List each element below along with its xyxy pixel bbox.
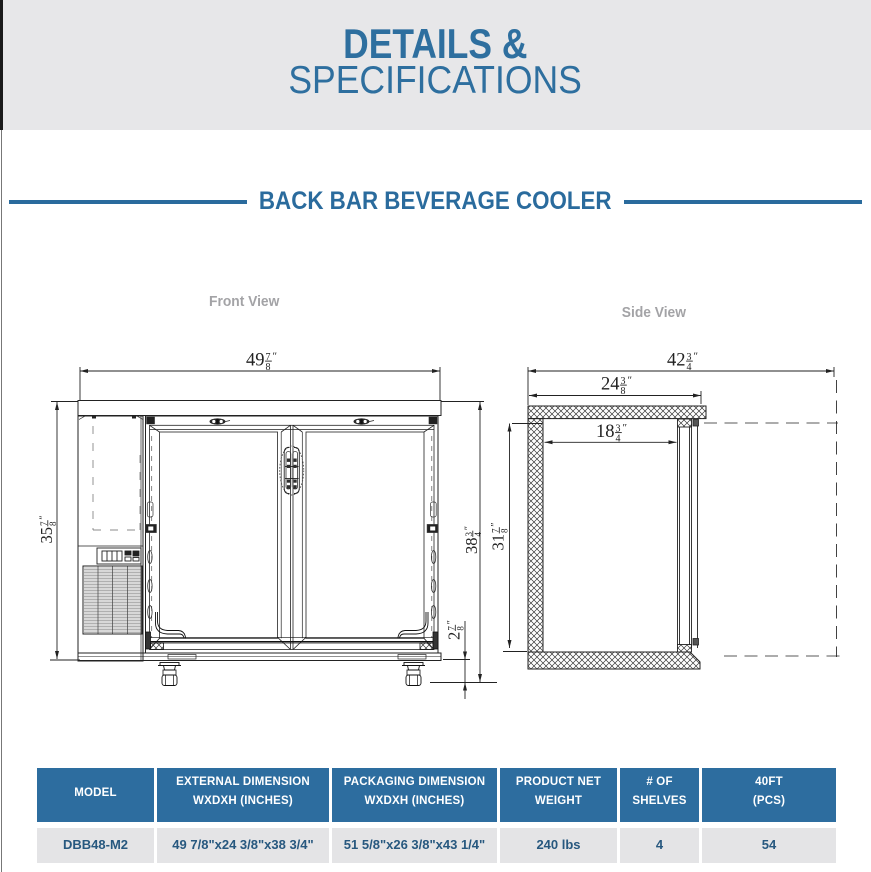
svg-text:18: 18 bbox=[596, 422, 615, 442]
svg-text:″: ″ bbox=[38, 515, 49, 519]
svg-text:8: 8 bbox=[621, 386, 626, 397]
svg-text:″: ″ bbox=[490, 522, 501, 526]
svg-text:″: ″ bbox=[273, 351, 278, 363]
svg-text:″: ″ bbox=[446, 620, 457, 624]
svg-text:8: 8 bbox=[266, 362, 271, 373]
svg-text:″: ″ bbox=[694, 351, 699, 363]
svg-text:4: 4 bbox=[473, 532, 483, 537]
svg-text:31: 31 bbox=[489, 534, 508, 551]
svg-text:24: 24 bbox=[601, 375, 620, 395]
svg-text:″: ″ bbox=[463, 526, 474, 530]
svg-text:2: 2 bbox=[445, 632, 464, 640]
svg-text:38: 38 bbox=[462, 538, 481, 555]
svg-text:″: ″ bbox=[623, 422, 628, 434]
svg-text:8: 8 bbox=[48, 521, 58, 526]
svg-text:42: 42 bbox=[667, 351, 686, 371]
svg-text:8: 8 bbox=[456, 626, 466, 631]
svg-text:4: 4 bbox=[687, 362, 692, 373]
svg-text:4: 4 bbox=[616, 433, 621, 444]
svg-text:″: ″ bbox=[628, 375, 633, 387]
svg-text:49: 49 bbox=[246, 351, 265, 371]
svg-text:35: 35 bbox=[37, 527, 56, 544]
svg-text:8: 8 bbox=[500, 528, 510, 533]
